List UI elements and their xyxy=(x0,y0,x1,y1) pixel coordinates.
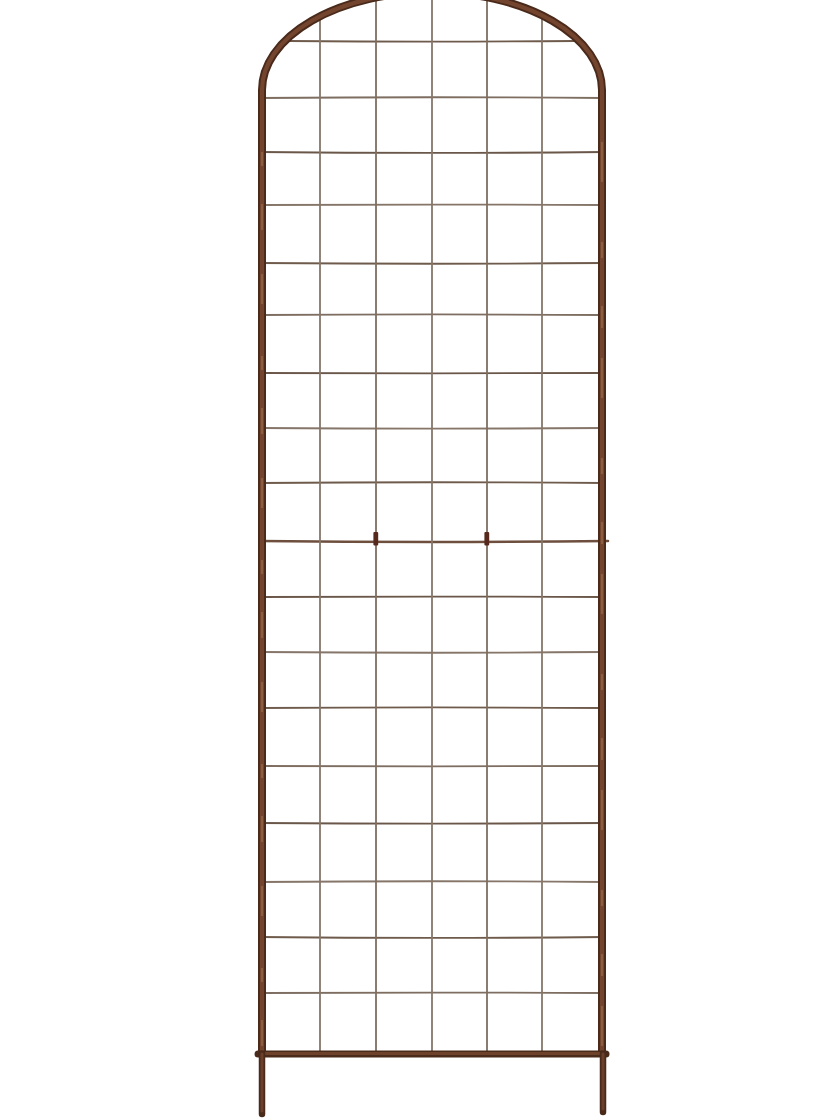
grid-wires xyxy=(260,0,608,1052)
trellis-svg xyxy=(0,0,840,1120)
trellis-base xyxy=(258,1054,606,1115)
grid-wire-vertical xyxy=(542,18,543,1052)
product-photo xyxy=(0,0,840,1120)
panel-joint-wire xyxy=(260,541,608,542)
joint-clip xyxy=(484,532,489,546)
grid-wire-vertical xyxy=(376,0,377,1052)
grid-wire-vertical xyxy=(431,0,432,1052)
joint-clip xyxy=(373,532,378,546)
